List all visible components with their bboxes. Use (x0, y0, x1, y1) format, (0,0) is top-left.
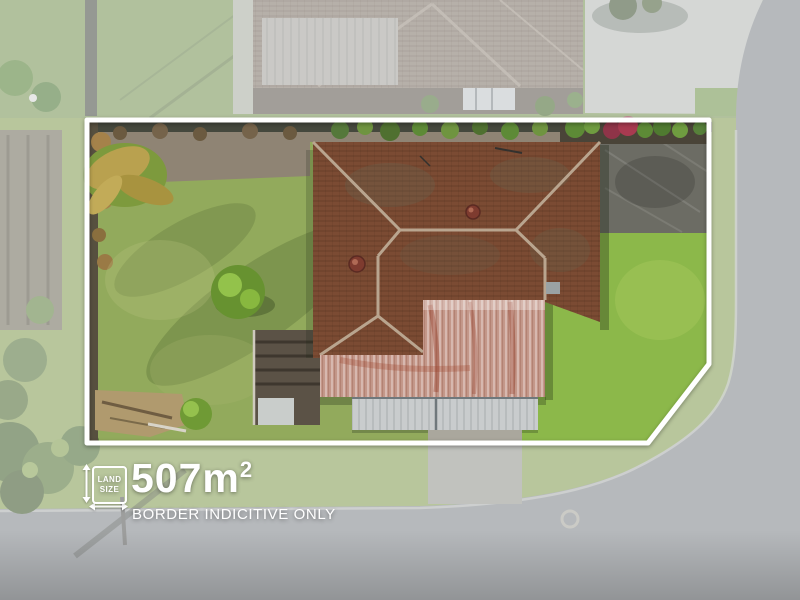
land-size-icon-line1: LAND (98, 475, 122, 485)
listing-photo-frame: LAND SIZE 507m2 BORDER INDICITIVE ONLY (0, 0, 800, 600)
land-size-icon-line2: SIZE (100, 485, 119, 495)
border-disclaimer: BORDER INDICITIVE ONLY (132, 506, 336, 523)
land-size-icon: LAND SIZE (92, 466, 127, 504)
land-area-number: 507m (131, 455, 240, 501)
roof-unit (546, 282, 560, 294)
bottom-vignette (0, 530, 800, 600)
vertical-measure-arrow-icon (81, 464, 92, 503)
property-interior (80, 116, 712, 444)
roof-vent (466, 205, 480, 219)
debris-pile (95, 390, 188, 437)
land-area-value: 507m2 (131, 458, 252, 499)
land-area-exponent: 2 (240, 457, 252, 482)
garage-roof (352, 397, 538, 430)
